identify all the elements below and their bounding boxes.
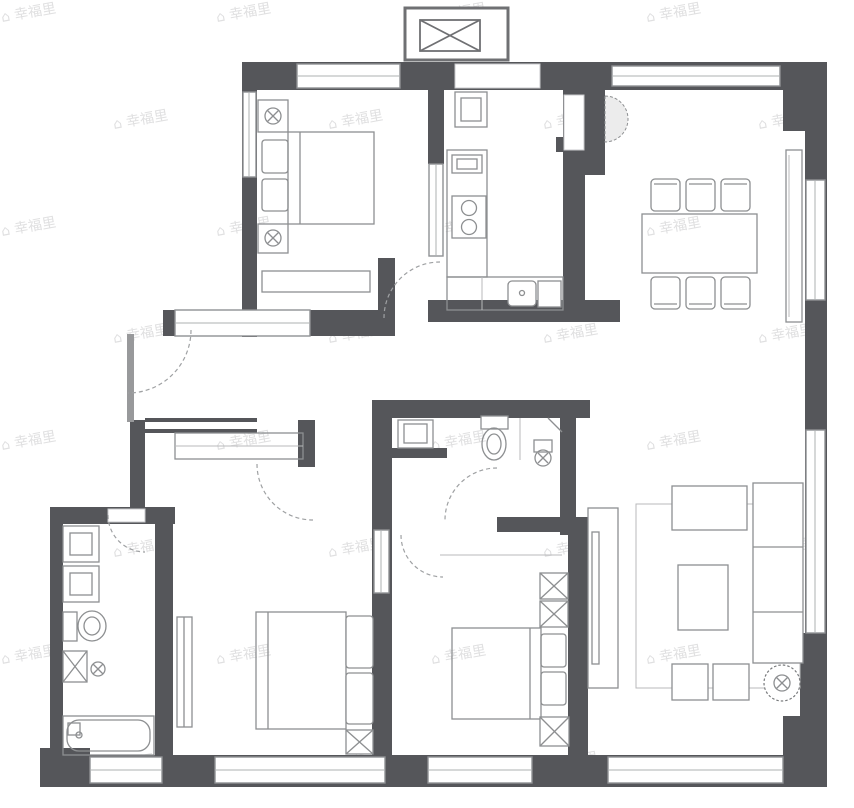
pillow [262, 140, 288, 173]
pillow [541, 634, 566, 667]
watermark-logo: ⌂ 幸福里 [0, 1, 57, 26]
wall-closet-end [298, 420, 315, 467]
pillow [262, 179, 288, 211]
wall-bath2-right [560, 400, 576, 535]
wall-bath2-top [372, 400, 590, 418]
vanity [63, 526, 99, 562]
wall-right-lower [800, 633, 827, 725]
bed [288, 132, 374, 224]
watermark-logo: ⌂ 幸福里 [112, 108, 169, 133]
coffee-table [678, 565, 728, 630]
watermark-logo: ⌂ 幸福里 [0, 429, 57, 454]
fridge [455, 92, 487, 127]
floorplan-svg: ⌂ 幸福里⌂ 幸福里⌂ 幸福里⌂ 幸福里⌂ 幸福里⌂ 幸福里⌂ 幸福里⌂ 幸福里… [0, 0, 854, 808]
wall-right-upper-block [783, 85, 827, 131]
wall-left [50, 507, 63, 781]
wall-bath2-bottom [497, 517, 588, 532]
opening-entry [455, 64, 540, 88]
watermark-logo: ⌂ 幸福里 [215, 1, 272, 26]
bed [256, 612, 346, 729]
bed [452, 628, 541, 719]
closet-band-back [145, 418, 257, 422]
vanity [63, 566, 99, 602]
wall-window-cap-left [163, 310, 175, 336]
pillow [541, 672, 566, 705]
toilet-inner [487, 434, 501, 454]
pillow [346, 673, 373, 724]
toilet-tank [63, 612, 77, 641]
wall-basin-stub [390, 448, 447, 458]
kitchen-sink [508, 281, 536, 306]
sofa-back [672, 486, 747, 530]
toilet-inner [84, 617, 100, 635]
entry-column [605, 96, 628, 142]
watermark-logo: ⌂ 幸福里 [112, 322, 169, 347]
ottoman [713, 664, 749, 700]
watermark-logo: ⌂ 幸福里 [327, 108, 384, 133]
wall-hall [130, 420, 145, 524]
toilet [78, 611, 106, 641]
kitchen-board [538, 281, 561, 307]
wall-bedroom3-living [568, 532, 588, 755]
ottoman [672, 664, 708, 700]
toilet-tank [481, 416, 508, 429]
wall-bath1-bedroom2 [155, 524, 173, 755]
door-arc-bedroom3 [401, 535, 443, 577]
wall-hall-thin [127, 334, 134, 422]
wall-bedroom1-bottom [310, 310, 395, 336]
watermark-logo: ⌂ 幸福里 [0, 643, 57, 668]
stove [452, 196, 486, 238]
opening-kitchen-door [564, 95, 584, 150]
sofa-right [753, 483, 803, 663]
watermark-logo: ⌂ 幸福里 [645, 429, 702, 454]
pillow [346, 616, 373, 668]
watermark-logo: ⌂ 幸福里 [645, 1, 702, 26]
floorplan-canvas: ⌂ 幸福里⌂ 幸福里⌂ 幸福里⌂ 幸福里⌂ 幸福里⌂ 幸福里⌂ 幸福里⌂ 幸福里… [0, 0, 854, 808]
bench [262, 271, 370, 292]
shower-corner [548, 418, 562, 432]
watermark-logo: ⌂ 幸福里 [215, 643, 272, 668]
door-arc-bathroom2 [445, 468, 497, 520]
watermark-logo: ⌂ 幸福里 [0, 215, 57, 240]
wall-bedroom1-right [428, 62, 444, 164]
watermark-logo: ⌂ 幸福里 [542, 322, 599, 347]
opening-bath1-door [108, 509, 145, 522]
watermark-logo: ⌂ 幸福里 [645, 215, 702, 240]
radiator [786, 150, 802, 322]
wall-bottom-left-pier [40, 748, 90, 787]
door-arc-bedroom2 [257, 464, 313, 520]
watermark-logo: ⌂ 幸福里 [430, 643, 487, 668]
